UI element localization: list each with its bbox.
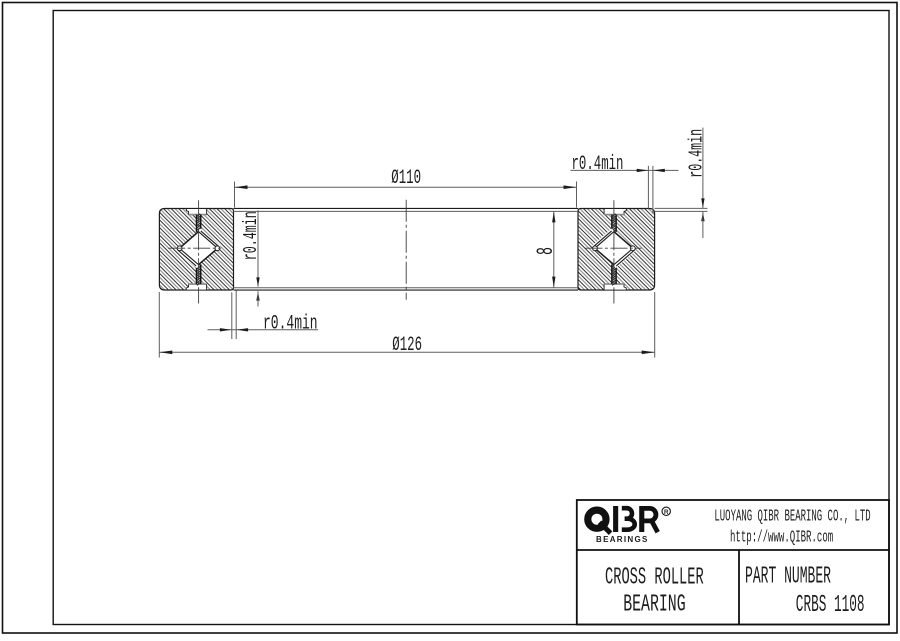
svg-text:CRBS 1108: CRBS 1108	[796, 591, 865, 619]
svg-text:BEARING: BEARING	[623, 591, 685, 619]
svg-text:r0.4min: r0.4min	[241, 211, 263, 260]
svg-text:LUOYANG QIBR BEARING CO., LTD: LUOYANG QIBR BEARING CO., LTD	[714, 508, 870, 527]
svg-text:r0.4min: r0.4min	[686, 129, 708, 178]
svg-text:8: 8	[533, 247, 560, 255]
svg-text:http://www.QIBR.com: http://www.QIBR.com	[730, 529, 833, 548]
svg-text:BEARINGS: BEARINGS	[596, 535, 649, 544]
svg-text:CROSS ROLLER: CROSS ROLLER	[605, 563, 704, 591]
svg-text:r0.4min: r0.4min	[263, 313, 318, 336]
svg-text:R: R	[664, 509, 669, 516]
svg-text:r0.4min: r0.4min	[572, 152, 624, 175]
svg-text:Ø110: Ø110	[391, 166, 421, 189]
svg-text:PART NUMBER: PART NUMBER	[745, 562, 831, 589]
svg-text:Ø126: Ø126	[392, 333, 422, 356]
